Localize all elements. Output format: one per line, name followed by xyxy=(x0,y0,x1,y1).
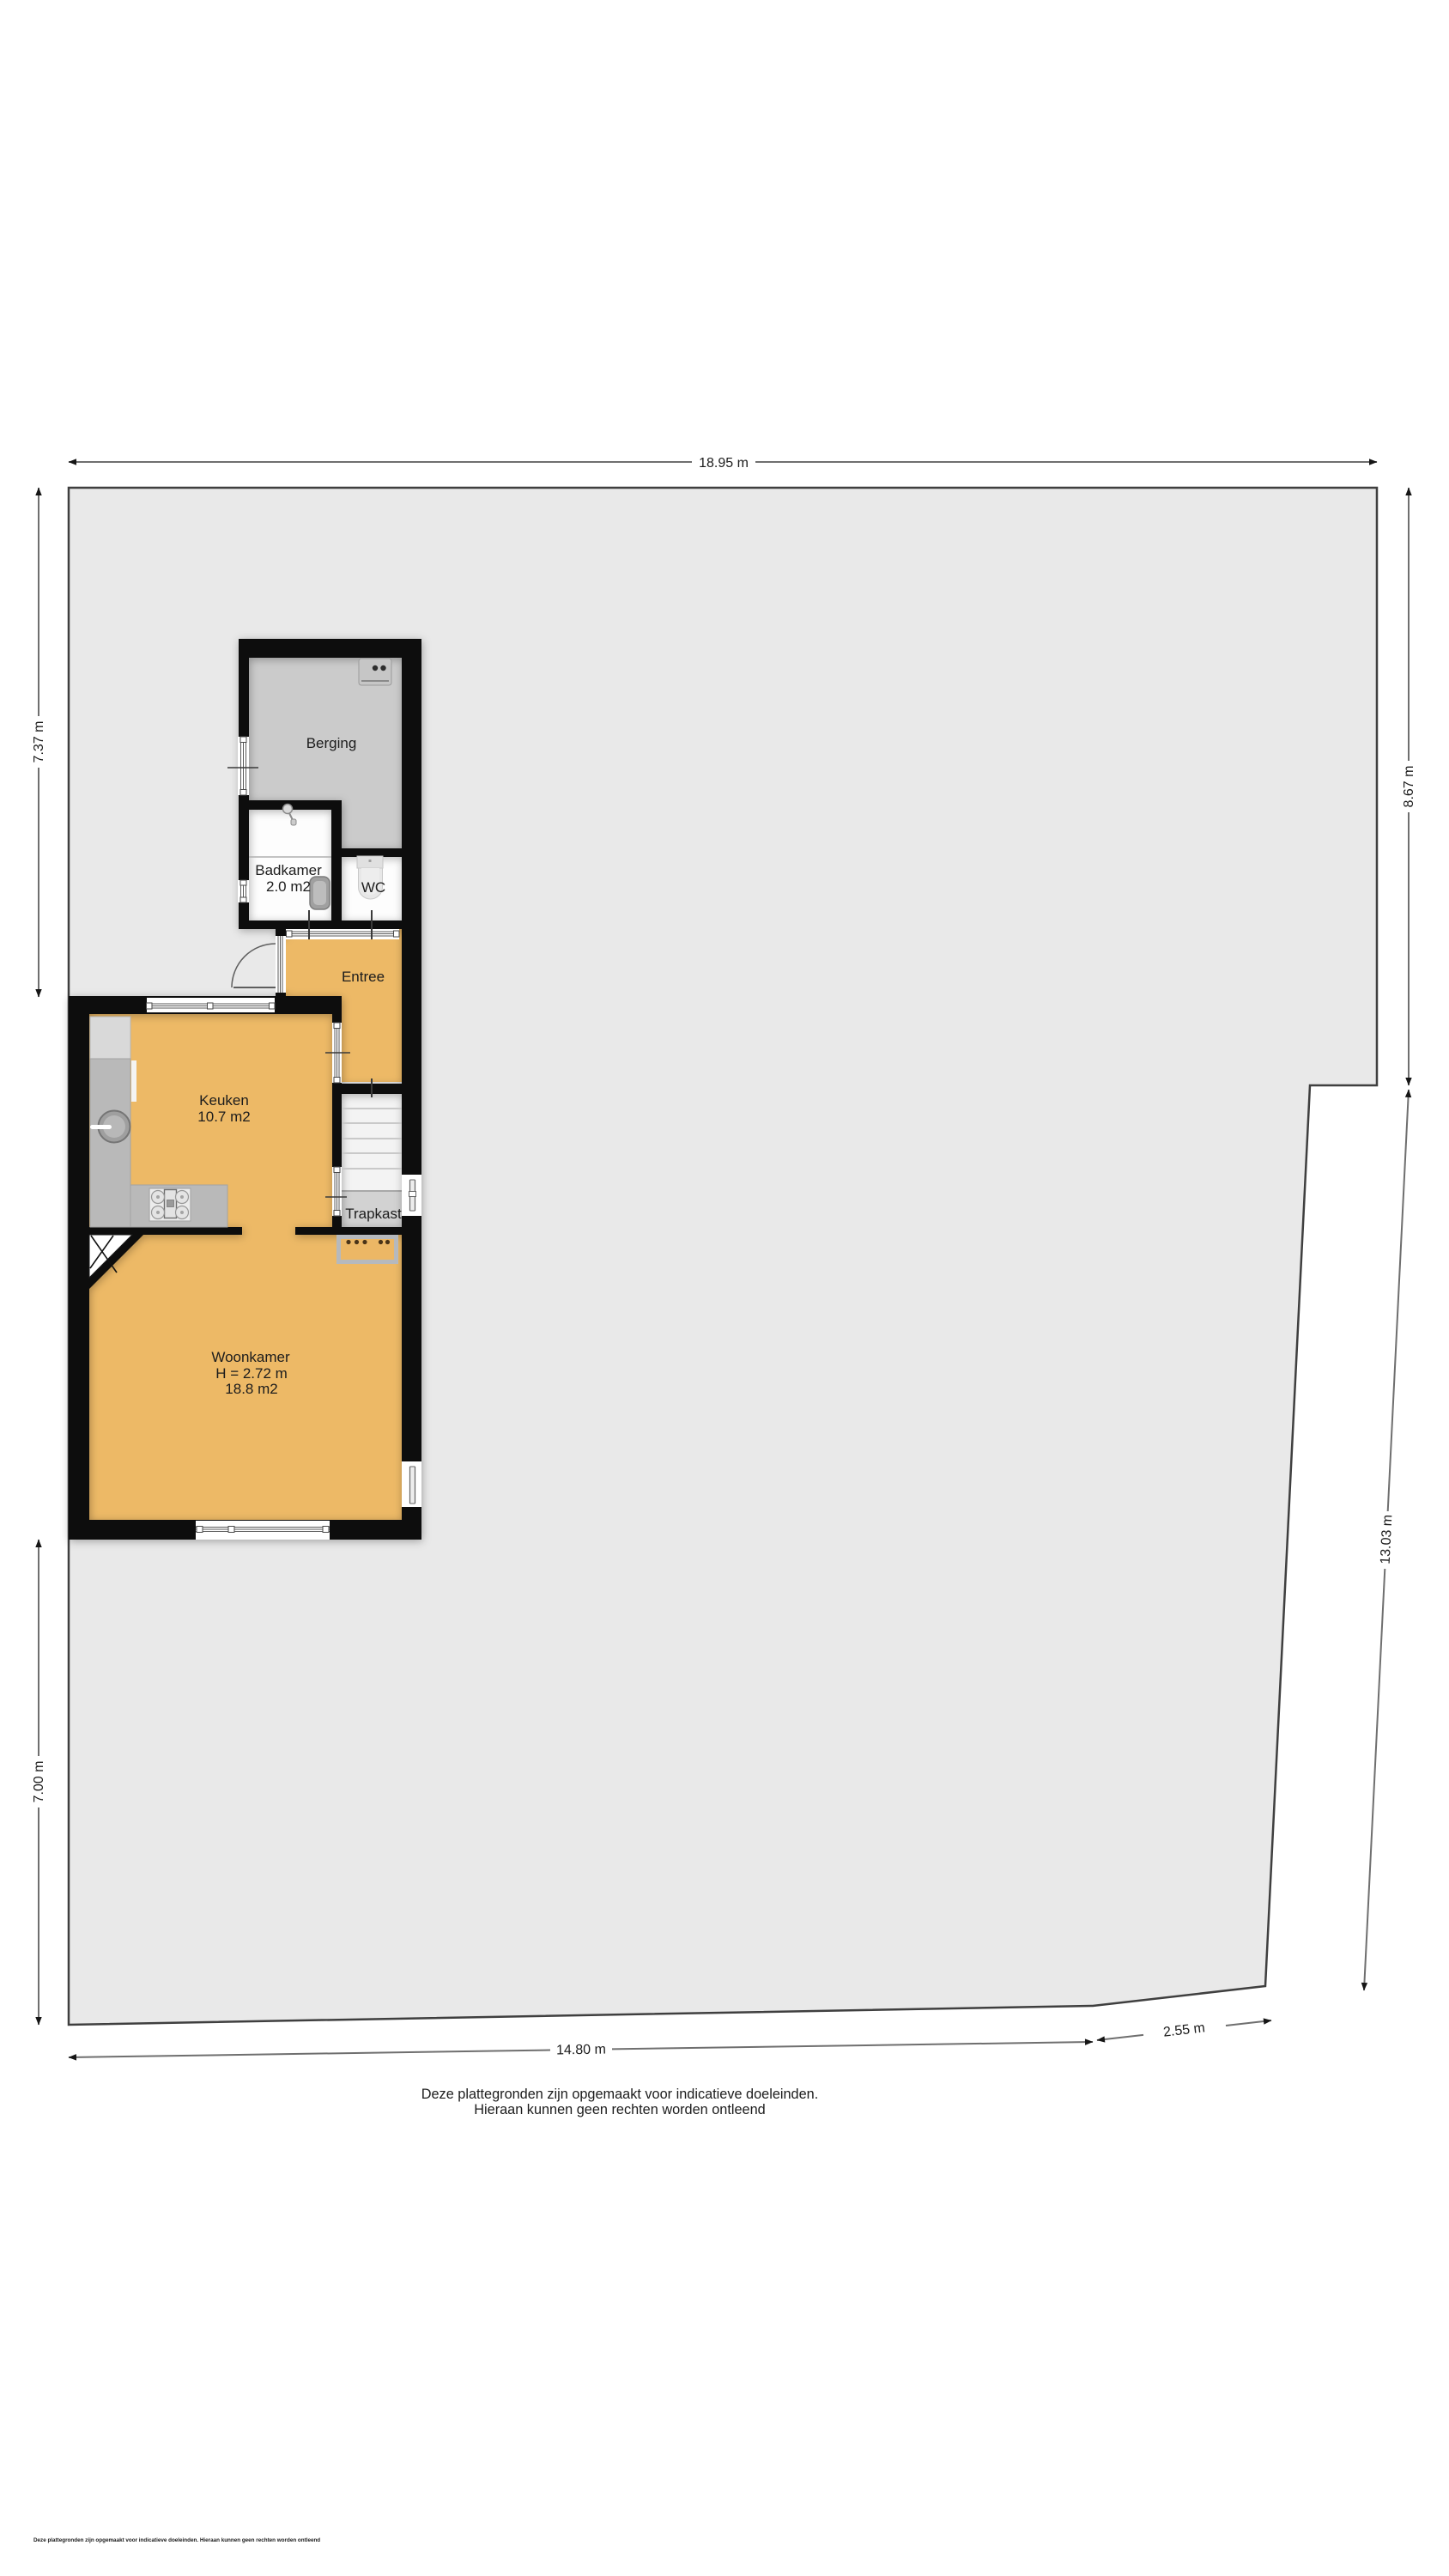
svg-text:Deze plattegronden zijn opgema: Deze plattegronden zijn opgemaakt voor i… xyxy=(421,2087,819,2102)
svg-text:7.37 m: 7.37 m xyxy=(32,721,46,763)
svg-text:Keuken: Keuken xyxy=(199,1092,249,1109)
svg-text:18.8 m2: 18.8 m2 xyxy=(225,1381,277,1397)
svg-text:2.0 m2: 2.0 m2 xyxy=(266,878,311,895)
svg-text:WC: WC xyxy=(361,879,385,896)
svg-text:Badkamer: Badkamer xyxy=(255,862,322,878)
svg-text:Berging: Berging xyxy=(306,735,357,751)
svg-text:18.95 m: 18.95 m xyxy=(699,456,749,471)
svg-text:Entree: Entree xyxy=(342,969,385,985)
svg-text:14.80 m: 14.80 m xyxy=(556,2043,606,2058)
svg-text:8.67 m: 8.67 m xyxy=(1402,766,1416,808)
svg-text:H = 2.72 m: H = 2.72 m xyxy=(215,1365,288,1382)
svg-text:10.7 m2: 10.7 m2 xyxy=(197,1109,250,1125)
svg-text:Hieraan kunnen geen rechten wo: Hieraan kunnen geen rechten worden ontle… xyxy=(474,2102,765,2117)
svg-text:Woonkamer: Woonkamer xyxy=(211,1349,290,1365)
svg-text:Deze plattegronden zijn opgema: Deze plattegronden zijn opgemaakt voor i… xyxy=(33,2537,320,2543)
svg-text:Trapkast: Trapkast xyxy=(345,1206,402,1222)
svg-text:7.00 m: 7.00 m xyxy=(32,1761,46,1803)
svg-text:13.03 m: 13.03 m xyxy=(1379,1514,1396,1564)
